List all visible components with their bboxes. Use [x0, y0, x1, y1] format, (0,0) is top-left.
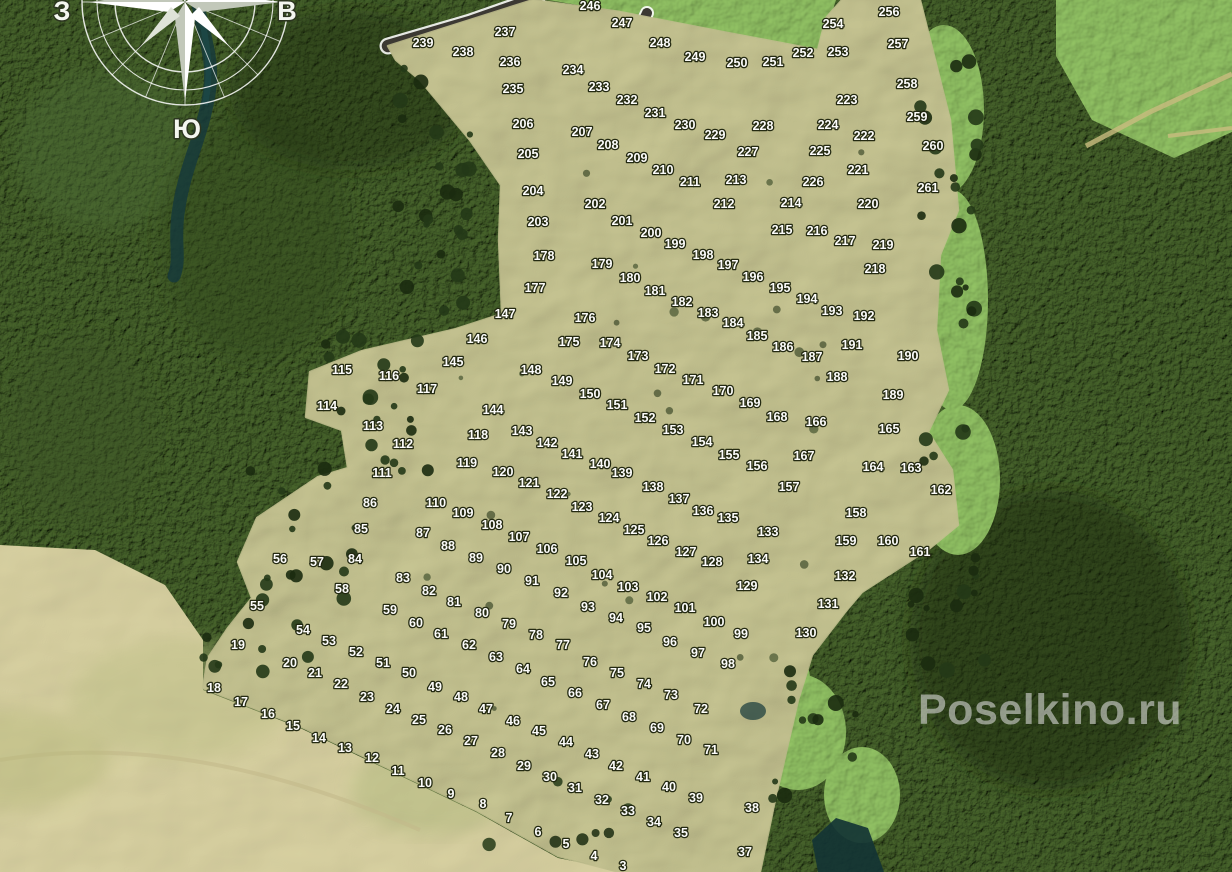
plot-label-176: 176 [575, 311, 596, 325]
plot-label-4: 4 [591, 849, 598, 863]
plot-label-114: 114 [317, 399, 337, 413]
plot-label-29: 29 [517, 759, 531, 773]
plot-label-123: 123 [572, 500, 593, 514]
plot-label-62: 62 [462, 638, 476, 652]
plot-label-224: 224 [818, 118, 839, 132]
plot-label-219: 219 [873, 238, 894, 252]
plot-label-156: 156 [747, 459, 768, 473]
plot-label-48: 48 [454, 690, 468, 704]
plot-label-137: 137 [669, 492, 690, 506]
plot-label-168: 168 [767, 410, 788, 424]
plot-label-246: 246 [580, 0, 601, 13]
plot-label-20: 20 [283, 656, 297, 670]
plot-label-257: 257 [888, 37, 909, 51]
plot-label-17: 17 [234, 695, 248, 709]
plot-label-122: 122 [547, 487, 568, 501]
compass-east-label: В [277, 0, 297, 26]
plot-label-167: 167 [794, 449, 815, 463]
plot-label-136: 136 [693, 504, 714, 518]
plot-label-37: 37 [738, 845, 752, 859]
plot-label-103: 103 [618, 580, 639, 594]
plot-label-99: 99 [734, 627, 748, 641]
plot-label-130: 130 [796, 626, 817, 640]
plot-label-85: 85 [354, 522, 368, 536]
plot-label-171: 171 [683, 373, 704, 387]
plot-label-42: 42 [609, 759, 623, 773]
plot-label-160: 160 [878, 534, 899, 548]
plot-label-211: 211 [680, 175, 700, 189]
plot-label-229: 229 [705, 128, 726, 142]
plot-label-139: 139 [612, 466, 633, 480]
plot-label-235: 235 [503, 82, 524, 96]
plot-label-3: 3 [620, 859, 627, 872]
plot-label-185: 185 [747, 329, 768, 343]
plot-label-145: 145 [443, 355, 464, 369]
plot-label-91: 91 [525, 574, 539, 588]
plot-label-11: 11 [391, 764, 404, 778]
plot-label-68: 68 [622, 710, 636, 724]
plot-label-52: 52 [349, 645, 363, 659]
plot-label-217: 217 [835, 234, 856, 248]
plot-label-165: 165 [879, 422, 900, 436]
plot-label-195: 195 [770, 281, 791, 295]
map-canvas: 3456789101112131415161718192021222324252… [0, 0, 1232, 872]
plot-label-15: 15 [286, 719, 300, 733]
plot-label-146: 146 [467, 332, 488, 346]
plot-label-149: 149 [552, 374, 573, 388]
plot-label-111: 111 [372, 466, 392, 480]
plot-label-184: 184 [723, 316, 744, 330]
plot-label-24: 24 [386, 702, 400, 716]
plot-label-225: 225 [810, 144, 831, 158]
plot-label-188: 188 [827, 370, 848, 384]
plot-label-133: 133 [758, 525, 779, 539]
plot-label-256: 256 [879, 5, 900, 19]
plot-label-32: 32 [595, 793, 609, 807]
plot-label-21: 21 [308, 666, 322, 680]
plot-label-199: 199 [665, 237, 686, 251]
plot-label-105: 105 [566, 554, 587, 568]
plot-label-107: 107 [509, 530, 530, 544]
plot-label-100: 100 [704, 615, 725, 629]
plot-label-218: 218 [865, 262, 886, 276]
plot-label-14: 14 [312, 731, 326, 745]
plot-label-118: 118 [468, 428, 488, 442]
plot-label-127: 127 [676, 545, 697, 559]
plot-label-148: 148 [521, 363, 542, 377]
plot-label-237: 237 [495, 25, 516, 39]
plot-label-212: 212 [714, 197, 735, 211]
plot-label-126: 126 [648, 534, 669, 548]
plot-label-53: 53 [322, 634, 336, 648]
plot-label-95: 95 [637, 621, 651, 635]
plot-label-179: 179 [592, 257, 613, 271]
plot-label-125: 125 [624, 523, 645, 537]
plot-label-227: 227 [738, 145, 759, 159]
plot-label-35: 35 [674, 826, 688, 840]
plot-label-162: 162 [931, 483, 952, 497]
plot-label-238: 238 [453, 45, 474, 59]
plot-label-33: 33 [621, 804, 635, 818]
plot-label-231: 231 [645, 106, 666, 120]
plot-label-259: 259 [907, 110, 928, 124]
plot-label-60: 60 [409, 616, 423, 630]
plot-label-61: 61 [434, 627, 448, 641]
plot-label-31: 31 [568, 781, 582, 795]
plot-label-71: 71 [704, 743, 718, 757]
plot-label-135: 135 [718, 511, 739, 525]
plot-label-55: 55 [250, 599, 264, 613]
plot-label-141: 141 [562, 447, 583, 461]
plot-label-223: 223 [837, 93, 858, 107]
plot-label-90: 90 [497, 562, 511, 576]
plot-label-16: 16 [261, 707, 275, 721]
plot-label-27: 27 [464, 734, 478, 748]
plot-label-110: 110 [426, 496, 446, 510]
plot-label-5: 5 [563, 837, 570, 851]
plot-label-181: 181 [645, 284, 666, 298]
plot-label-102: 102 [647, 590, 668, 604]
plot-label-94: 94 [609, 611, 623, 625]
plot-label-187: 187 [802, 350, 823, 364]
plot-label-79: 79 [502, 617, 516, 631]
plot-label-63: 63 [489, 650, 503, 664]
plot-label-182: 182 [672, 295, 693, 309]
plot-label-197: 197 [718, 258, 739, 272]
plot-label-169: 169 [740, 396, 761, 410]
plot-label-205: 205 [518, 147, 539, 161]
plot-label-173: 173 [628, 349, 649, 363]
plot-label-7: 7 [506, 811, 513, 825]
plot-label-201: 201 [612, 214, 633, 228]
plot-label-142: 142 [537, 436, 558, 450]
plot-label-124: 124 [599, 511, 620, 525]
plot-label-96: 96 [663, 635, 677, 649]
plot-label-47: 47 [479, 702, 493, 716]
plot-label-18: 18 [207, 681, 221, 695]
plot-label-117: 117 [417, 382, 437, 396]
plot-label-233: 233 [589, 80, 610, 94]
plot-label-73: 73 [664, 688, 678, 702]
plot-label-234: 234 [563, 63, 584, 77]
plot-label-45: 45 [532, 724, 546, 738]
plot-label-59: 59 [383, 603, 397, 617]
plot-label-203: 203 [528, 215, 549, 229]
plot-label-23: 23 [360, 690, 374, 704]
plot-label-147: 147 [495, 307, 516, 321]
compass-south-label: Ю [173, 114, 201, 144]
plot-label-131: 131 [818, 597, 839, 611]
plot-label-206: 206 [513, 117, 534, 131]
plot-label-226: 226 [803, 175, 824, 189]
plot-label-213: 213 [726, 173, 747, 187]
plot-label-101: 101 [675, 601, 696, 615]
plot-label-104: 104 [592, 568, 613, 582]
plot-label-57: 57 [310, 555, 324, 569]
plot-label-222: 222 [854, 129, 875, 143]
plot-label-13: 13 [338, 741, 352, 755]
plot-label-115: 115 [332, 363, 352, 377]
plot-label-44: 44 [559, 735, 573, 749]
plot-label-254: 254 [823, 17, 844, 31]
plot-label-140: 140 [590, 457, 611, 471]
plot-label-258: 258 [897, 77, 918, 91]
plot-label-54: 54 [296, 623, 310, 637]
plot-label-97: 97 [691, 646, 705, 660]
watermark: Poselkino.ru [918, 686, 1182, 734]
plot-label-108: 108 [482, 518, 503, 532]
plot-label-75: 75 [610, 666, 624, 680]
plot-label-98: 98 [721, 657, 735, 671]
plot-label-113: 113 [363, 419, 383, 433]
plot-label-46: 46 [506, 714, 520, 728]
plot-label-192: 192 [854, 309, 875, 323]
plot-label-214: 214 [781, 196, 802, 210]
plot-label-232: 232 [617, 93, 638, 107]
plot-label-189: 189 [883, 388, 904, 402]
plot-label-65: 65 [541, 675, 555, 689]
plot-label-154: 154 [692, 435, 713, 449]
plot-label-89: 89 [469, 551, 483, 565]
plot-label-120: 120 [493, 465, 514, 479]
plot-label-40: 40 [662, 780, 676, 794]
plot-label-138: 138 [643, 480, 664, 494]
plot-label-51: 51 [376, 656, 390, 670]
plot-label-19: 19 [231, 638, 245, 652]
plot-label-25: 25 [412, 713, 426, 727]
plot-label-129: 129 [737, 579, 758, 593]
plot-label-198: 198 [693, 248, 714, 262]
plot-label-208: 208 [598, 138, 619, 152]
plot-label-216: 216 [807, 224, 828, 238]
plot-label-170: 170 [713, 384, 734, 398]
plot-label-119: 119 [457, 456, 477, 470]
plot-label-116: 116 [379, 369, 399, 383]
plot-label-66: 66 [568, 686, 582, 700]
plot-label-67: 67 [596, 698, 610, 712]
plot-label-58: 58 [335, 582, 349, 596]
plot-label-86: 86 [363, 496, 377, 510]
plot-label-204: 204 [523, 184, 544, 198]
plot-label-28: 28 [491, 746, 505, 760]
plot-label-161: 161 [910, 545, 931, 559]
plot-label-112: 112 [393, 437, 413, 451]
site-plan-map: 3456789101112131415161718192021222324252… [0, 0, 1232, 872]
plot-label-49: 49 [428, 680, 442, 694]
plot-label-26: 26 [438, 723, 452, 737]
plot-label-39: 39 [689, 791, 703, 805]
plot-label-163: 163 [901, 461, 922, 475]
plot-label-178: 178 [534, 249, 555, 263]
plot-label-10: 10 [418, 776, 432, 790]
plot-label-72: 72 [694, 702, 708, 716]
plot-label-250: 250 [727, 56, 748, 70]
plot-label-22: 22 [334, 677, 348, 691]
plot-label-191: 191 [842, 338, 863, 352]
plot-label-132: 132 [835, 569, 856, 583]
plot-label-236: 236 [500, 55, 521, 69]
plot-label-164: 164 [863, 460, 884, 474]
plot-label-6: 6 [535, 825, 542, 839]
plot-label-220: 220 [858, 197, 879, 211]
plot-label-172: 172 [655, 362, 676, 376]
plot-label-80: 80 [475, 606, 489, 620]
plot-label-74: 74 [637, 677, 651, 691]
plot-label-153: 153 [663, 423, 684, 437]
plot-label-253: 253 [828, 45, 849, 59]
plot-label-143: 143 [512, 424, 533, 438]
plot-label-183: 183 [698, 306, 719, 320]
plot-label-88: 88 [441, 539, 455, 553]
plot-label-12: 12 [365, 751, 379, 765]
plot-label-30: 30 [543, 770, 557, 784]
plot-label-239: 239 [413, 36, 434, 50]
plot-label-177: 177 [525, 281, 546, 295]
plot-label-221: 221 [848, 163, 869, 177]
plot-label-157: 157 [779, 480, 800, 494]
plot-label-252: 252 [793, 46, 814, 60]
plot-label-109: 109 [453, 506, 474, 520]
plot-label-152: 152 [635, 411, 656, 425]
plot-label-34: 34 [647, 815, 661, 829]
plot-label-121: 121 [519, 476, 540, 490]
plot-label-209: 209 [627, 151, 648, 165]
plot-label-56: 56 [273, 552, 287, 566]
plot-label-43: 43 [585, 747, 599, 761]
plot-label-77: 77 [556, 638, 570, 652]
plot-label-83: 83 [396, 571, 410, 585]
plot-label-215: 215 [772, 223, 793, 237]
plot-label-202: 202 [585, 197, 606, 211]
plot-label-93: 93 [581, 600, 595, 614]
plot-label-87: 87 [416, 526, 430, 540]
plot-label-64: 64 [516, 662, 530, 676]
plot-label-248: 248 [650, 36, 671, 50]
plot-label-50: 50 [402, 666, 416, 680]
plot-label-106: 106 [537, 542, 558, 556]
plot-label-174: 174 [600, 336, 621, 350]
plot-label-159: 159 [836, 534, 857, 548]
plot-label-247: 247 [612, 16, 633, 30]
plot-label-249: 249 [685, 50, 706, 64]
plot-label-38: 38 [745, 801, 759, 815]
plot-label-134: 134 [748, 552, 769, 566]
plot-label-144: 144 [483, 403, 504, 417]
plot-label-69: 69 [650, 721, 664, 735]
plot-label-84: 84 [348, 552, 362, 566]
plot-label-190: 190 [898, 349, 919, 363]
plot-label-186: 186 [773, 340, 794, 354]
plot-label-155: 155 [719, 448, 740, 462]
plot-label-207: 207 [572, 125, 593, 139]
compass-west-label: З [54, 0, 71, 26]
plot-label-261: 261 [918, 181, 939, 195]
plot-label-82: 82 [422, 584, 436, 598]
plot-label-200: 200 [641, 226, 662, 240]
plot-label-128: 128 [702, 555, 723, 569]
plot-label-9: 9 [448, 787, 455, 801]
plot-label-228: 228 [753, 119, 774, 133]
plot-label-193: 193 [822, 304, 843, 318]
plot-label-158: 158 [846, 506, 867, 520]
plot-label-8: 8 [480, 797, 487, 811]
plot-label-175: 175 [559, 335, 580, 349]
plot-label-260: 260 [923, 139, 944, 153]
plot-label-76: 76 [583, 655, 597, 669]
plot-label-180: 180 [620, 271, 641, 285]
plot-label-210: 210 [653, 163, 674, 177]
plot-label-78: 78 [529, 628, 543, 642]
plot-label-92: 92 [554, 586, 568, 600]
plot-label-150: 150 [580, 387, 601, 401]
plot-label-81: 81 [447, 595, 461, 609]
plot-label-251: 251 [763, 55, 784, 69]
plot-label-230: 230 [675, 118, 696, 132]
plot-label-196: 196 [743, 270, 764, 284]
plot-label-166: 166 [806, 415, 827, 429]
plot-label-41: 41 [636, 770, 650, 784]
plot-label-151: 151 [607, 398, 628, 412]
plot-label-194: 194 [797, 292, 818, 306]
plot-label-70: 70 [677, 733, 691, 747]
